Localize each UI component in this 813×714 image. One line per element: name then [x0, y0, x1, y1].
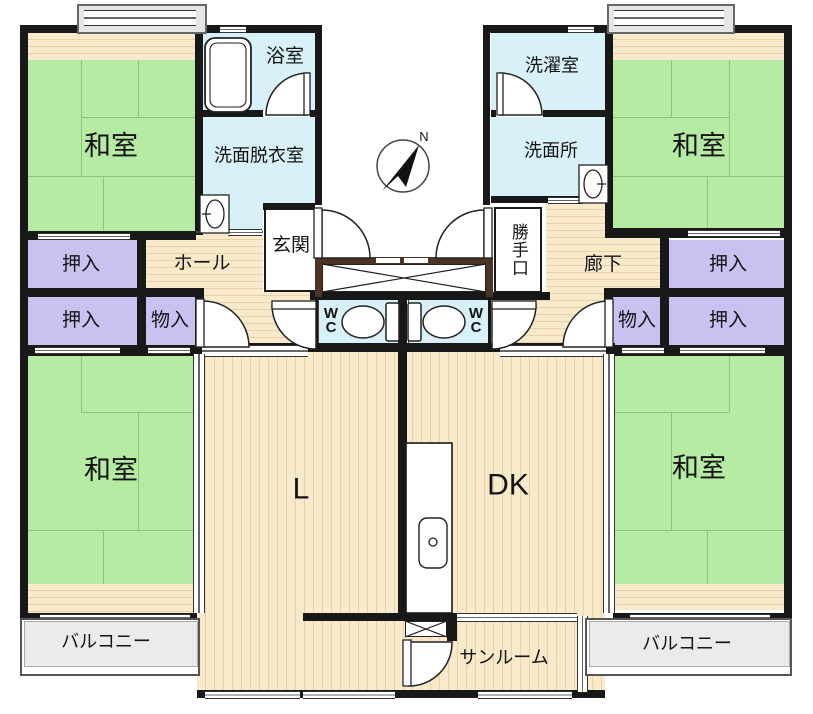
toilet-right-bowl — [423, 306, 465, 338]
compass — [377, 140, 429, 192]
room-label-washitsu-br: 和室 — [672, 454, 726, 482]
room-label-closet-tl1: 押入 — [62, 255, 100, 275]
entrance-door-swing — [322, 210, 370, 258]
corridor-right-door-swing — [563, 301, 609, 347]
toilet-left-bowl — [342, 306, 384, 338]
room-label-wc-left: WC — [323, 307, 340, 336]
wc-left-door-leaf — [272, 301, 316, 309]
sunroom-door-swing — [409, 642, 452, 686]
corridor-right-door-leaf — [605, 299, 613, 347]
toilet-left-tank — [386, 303, 399, 341]
corridor-left-door-swing — [203, 301, 249, 347]
room-label-washroom-dressing: 洗面脱衣室 — [214, 147, 304, 166]
room-label-entrance: 玄関 — [272, 236, 310, 256]
bath-door-leaf — [304, 73, 310, 115]
room-label-corridor: 廊下 — [584, 255, 622, 275]
room-label-living: L — [293, 473, 310, 505]
wc-right-door-leaf — [492, 301, 536, 309]
room-label-laundry: 洗濯室 — [525, 57, 579, 76]
sunroom-door-leaf — [403, 640, 411, 686]
bathtub-inner — [210, 43, 246, 107]
room-label-hall: ホール — [173, 254, 230, 274]
entrance-door-leaf — [314, 208, 322, 258]
room-label-balcony-l: バルコニー — [61, 633, 151, 652]
bath-door-swing — [266, 73, 308, 115]
room-label-balcony-r: バルコニー — [642, 635, 732, 654]
room-label-sunroom: サンルーム — [459, 649, 548, 668]
room-label-closet-tl2: 押入 — [62, 311, 100, 331]
room-label-storage-l: 物入 — [151, 311, 189, 331]
room-label-back-door: 勝手口 — [509, 223, 527, 277]
toilet-right-tank — [408, 303, 421, 341]
wc-right-door-swing — [492, 305, 536, 349]
room-label-bath: 浴室 — [266, 47, 304, 67]
room-label-storage-r: 物入 — [618, 311, 656, 331]
room-label-washitsu-tl: 和室 — [84, 132, 138, 160]
room-label-wc-right: WC — [468, 307, 485, 336]
laundry-door-swing — [500, 73, 542, 115]
floor-plan: 和室 和室 和室 和室 浴室 洗面脱衣室 洗濯室 洗面所 玄関 勝手口 ホール … — [0, 0, 813, 714]
room-label-dk: DK — [487, 469, 529, 501]
room-label-washitsu-tr: 和室 — [672, 132, 726, 160]
fixtures-overlay — [0, 0, 813, 714]
compass-needle — [382, 145, 419, 191]
kitchen-faucet — [429, 538, 437, 546]
back-door-swing — [436, 210, 484, 258]
room-label-washitsu-bl: 和室 — [84, 456, 138, 484]
wc-left-door-swing — [272, 305, 316, 349]
room-label-closet-tr1: 押入 — [709, 255, 747, 275]
room-label-washroom: 洗面所 — [524, 142, 578, 161]
compass-north-label: N — [419, 130, 428, 144]
back-door-leaf — [484, 208, 492, 258]
laundry-door-leaf — [497, 73, 503, 115]
corridor-left-door-leaf — [196, 299, 204, 347]
room-label-closet-tr2: 押入 — [709, 311, 747, 331]
